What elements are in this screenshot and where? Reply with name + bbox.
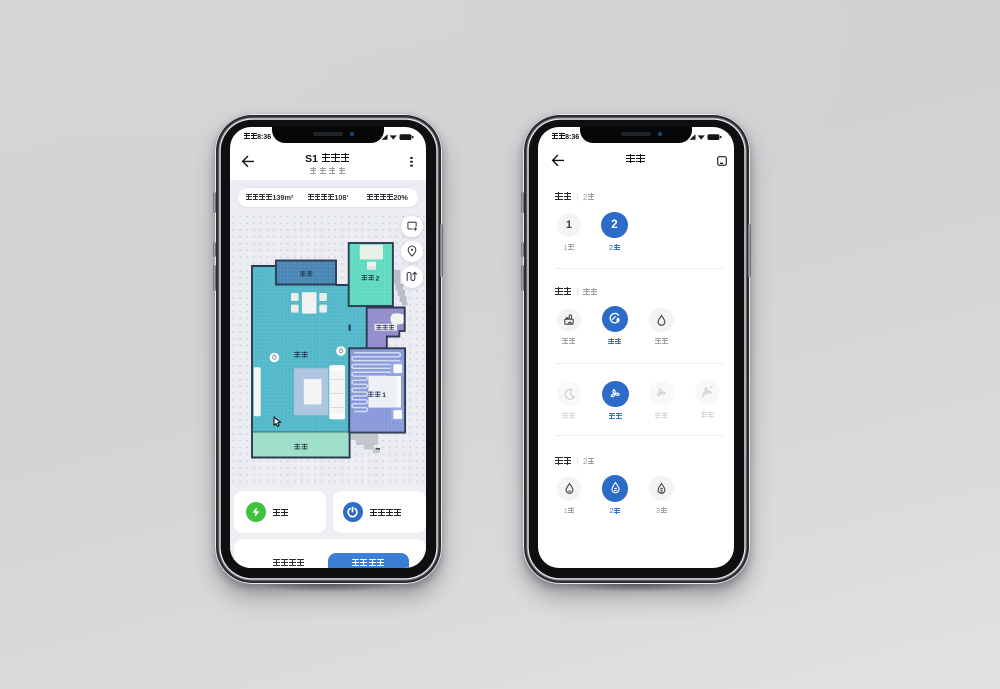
svg-text:1: 1	[382, 391, 386, 398]
svg-text:2: 2	[375, 275, 379, 282]
